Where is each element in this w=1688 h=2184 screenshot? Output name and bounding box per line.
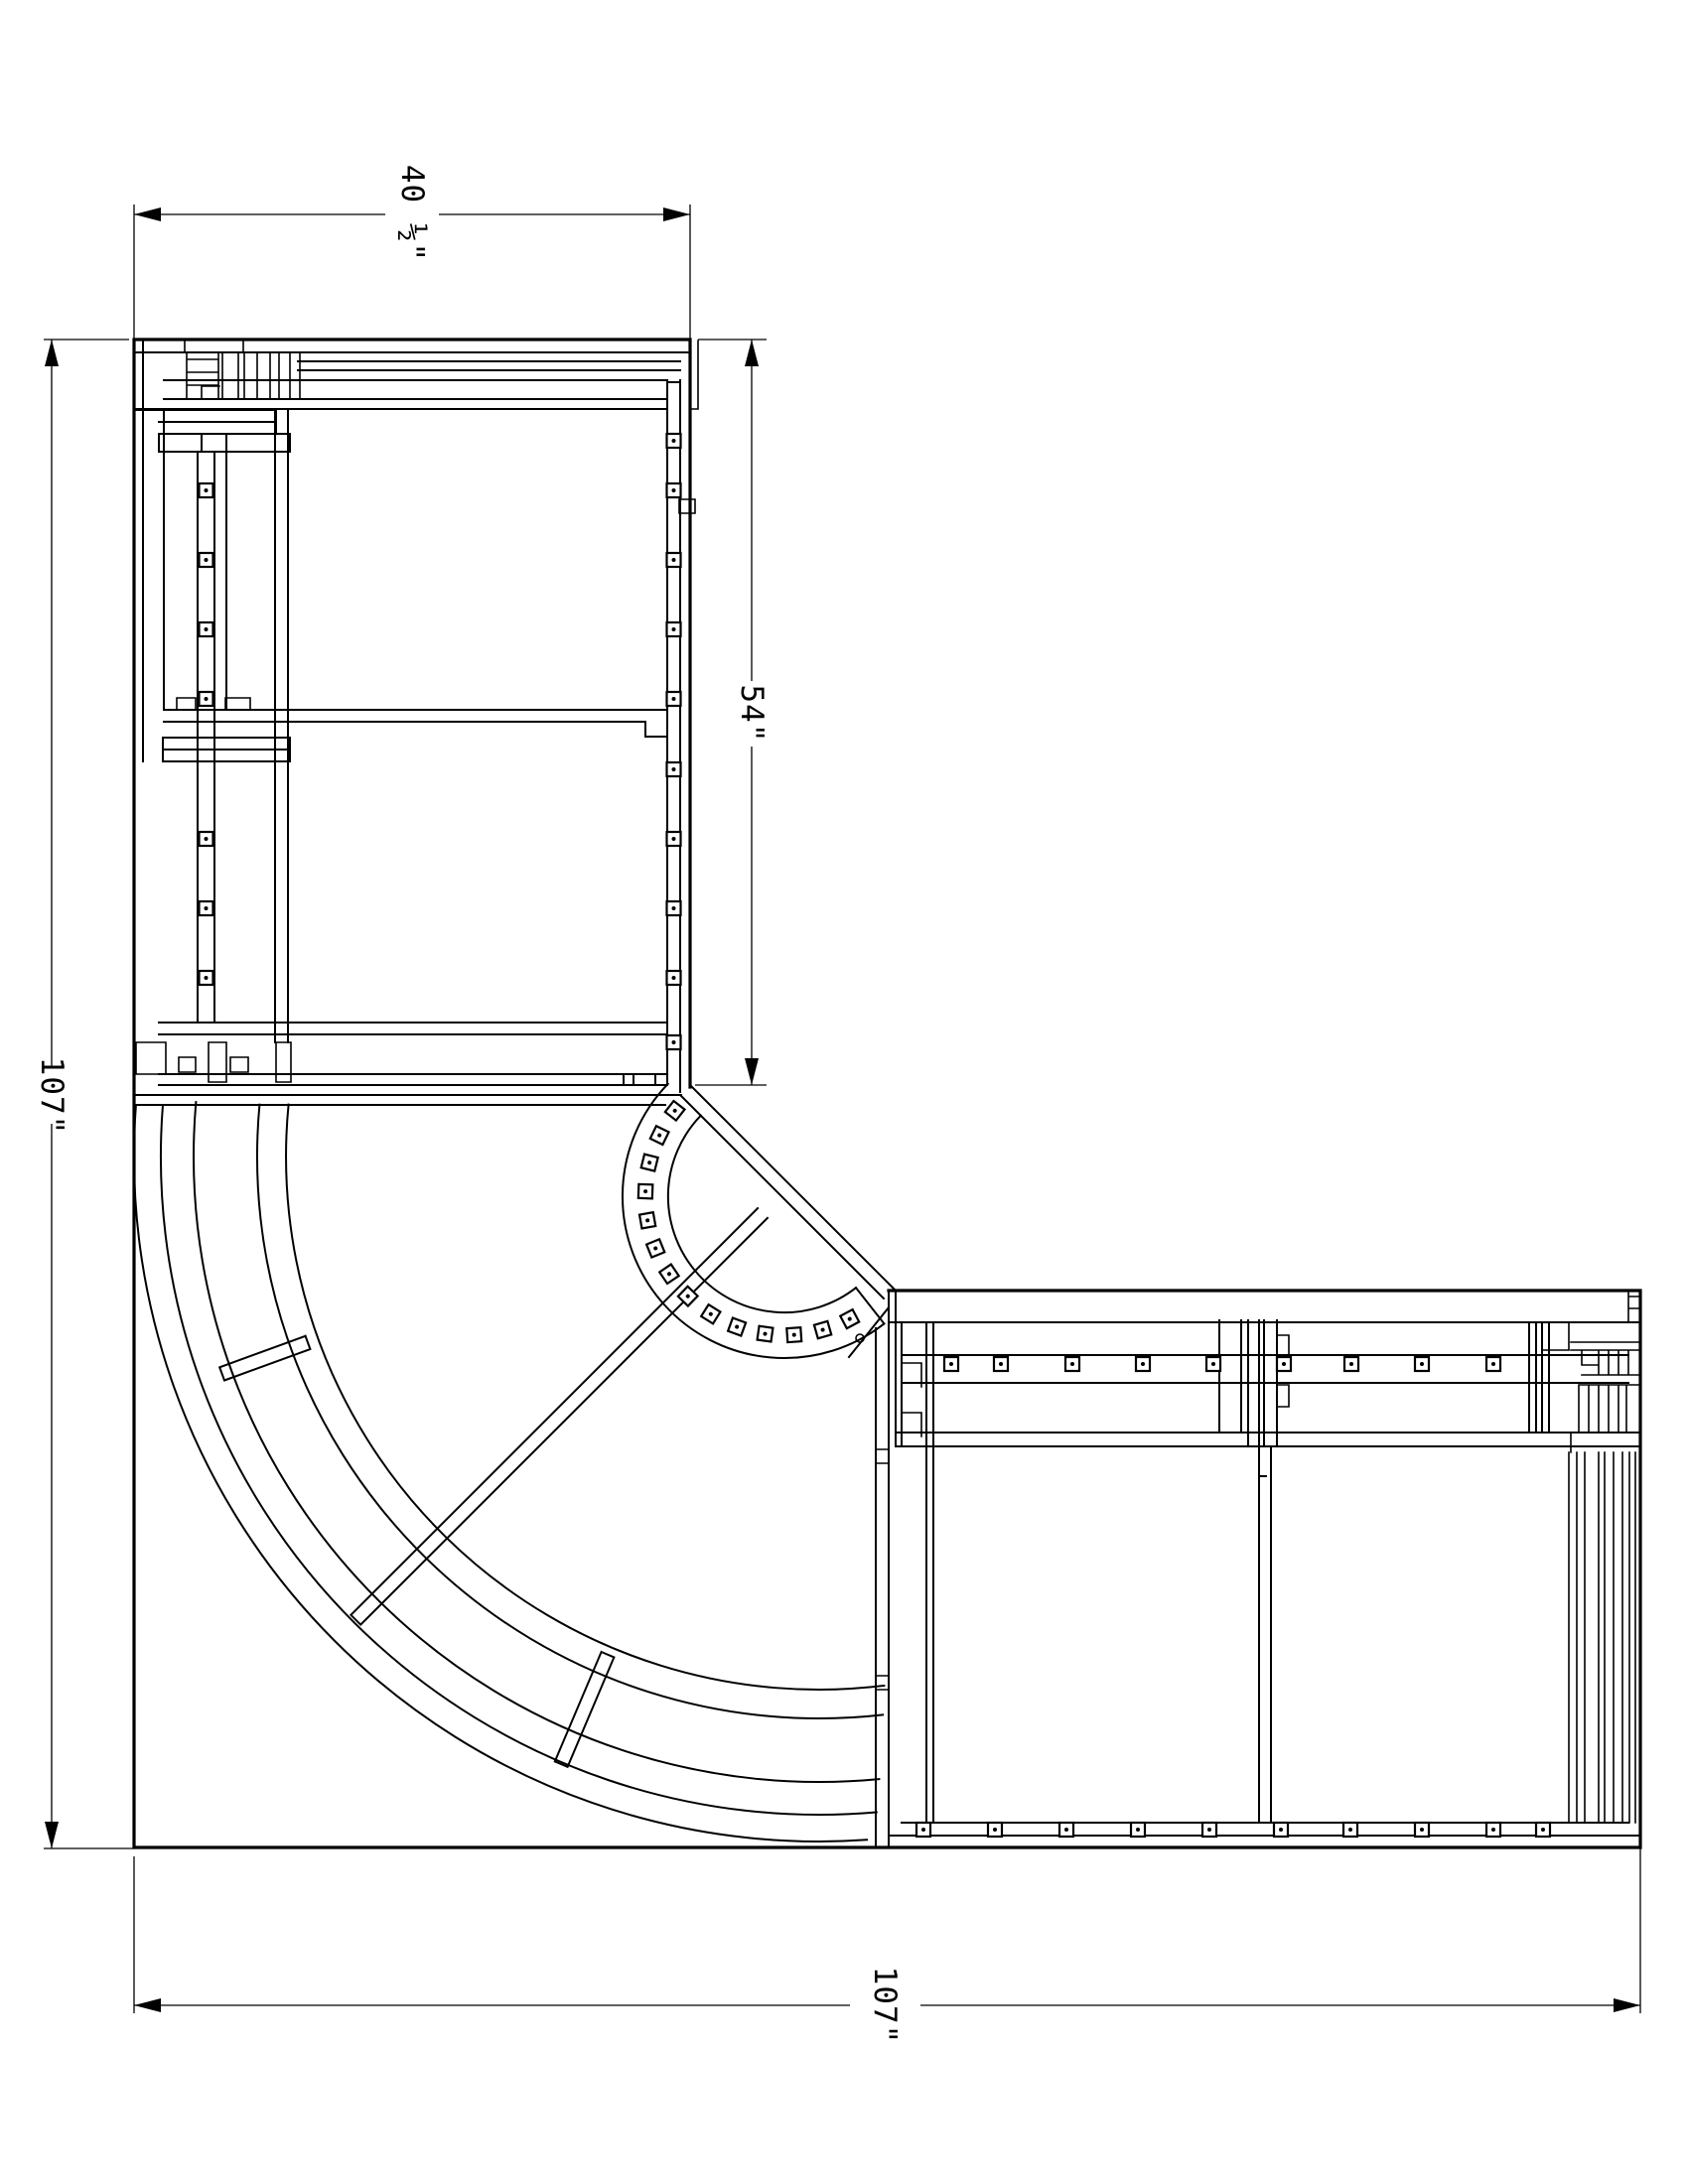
fastener-square: [1343, 1823, 1357, 1837]
fastener-square: [1136, 1357, 1150, 1371]
cad-canvas: 40 ½" 54" 107" 107": [0, 0, 1688, 2184]
fastener-square: [667, 553, 681, 567]
fastener-square: [200, 971, 213, 985]
fastener-square: [638, 1184, 652, 1198]
fastener-square: [701, 1304, 720, 1323]
fastener-square: [988, 1823, 1002, 1837]
fastener-square: [667, 692, 681, 706]
dim-top-width-label: 40 ½": [394, 165, 430, 262]
fastener-square: [944, 1357, 958, 1371]
fastener-square: [667, 483, 681, 497]
fastener-square: [1536, 1823, 1550, 1837]
fastener-square: [1277, 1357, 1291, 1371]
curved-plate-arcs: [134, 1102, 884, 1842]
fastener-square: [665, 1101, 685, 1121]
fastener-square: [758, 1326, 774, 1342]
fastener-square: [1486, 1357, 1500, 1371]
right-leg-framing: [876, 1291, 1640, 1846]
fastener-square: [728, 1318, 746, 1336]
fastener-square: [1274, 1823, 1288, 1837]
fastener-square: [639, 1212, 655, 1228]
fastener-square: [667, 901, 681, 915]
fastener-square: [650, 1126, 669, 1145]
fastener-square: [1202, 1823, 1216, 1837]
fastener-square: [1131, 1823, 1145, 1837]
fastener-square: [1065, 1357, 1079, 1371]
fastener-square: [667, 622, 681, 636]
fastener-square: [994, 1357, 1008, 1371]
fastener-square: [659, 1265, 678, 1284]
bar-framing-plan-drawing: 40 ½" 54" 107" 107": [0, 0, 1688, 2184]
fastener-square: [814, 1321, 831, 1338]
fastener-square: [200, 901, 213, 915]
dimension-arrowheads: [45, 207, 1640, 2012]
fastener-square: [916, 1823, 930, 1837]
fastener-square: [667, 971, 681, 985]
fastener-square: [641, 1155, 658, 1171]
fastener-square: [667, 434, 681, 448]
fastener-square: [200, 692, 213, 706]
structure-outline: [134, 340, 1640, 1847]
fastener-square: [1059, 1823, 1073, 1837]
fastener-square: [200, 622, 213, 636]
dim-right-height-label: 54": [734, 685, 770, 744]
fastener-square: [667, 832, 681, 846]
fastener-square: [200, 553, 213, 567]
fastener-squares: [200, 434, 1551, 1837]
dim-bottom-width-label: 107": [867, 1967, 903, 2045]
fastener-square: [200, 483, 213, 497]
fastener-square: [1486, 1823, 1500, 1837]
fastener-square: [667, 762, 681, 776]
fastener-square: [667, 1035, 681, 1049]
fastener-square: [840, 1309, 859, 1328]
fastener-square: [786, 1327, 801, 1342]
top-leg-framing: [134, 340, 698, 1105]
dim-left-height-label: 107": [34, 1057, 70, 1136]
fastener-square: [200, 832, 213, 846]
fastener-square: [646, 1239, 664, 1257]
fastener-square: [1415, 1823, 1429, 1837]
fastener-square: [1344, 1357, 1358, 1371]
fastener-square: [1415, 1357, 1429, 1371]
fastener-square: [1206, 1357, 1220, 1371]
